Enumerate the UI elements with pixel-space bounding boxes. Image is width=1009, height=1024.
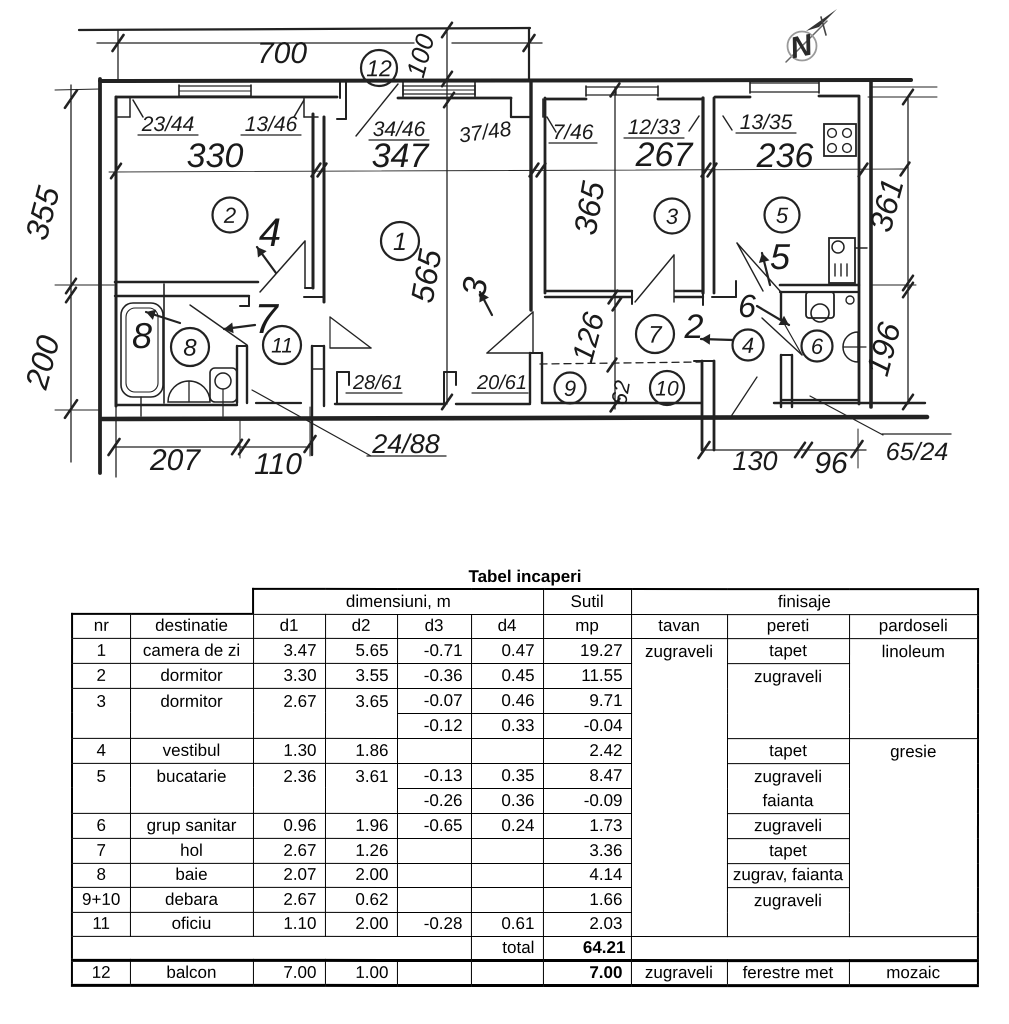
svg-text:3: 3 bbox=[455, 274, 496, 299]
svg-text:110: 110 bbox=[254, 448, 302, 481]
svg-text:565: 565 bbox=[404, 246, 449, 305]
svg-text:200: 200 bbox=[18, 332, 67, 394]
svg-text:4: 4 bbox=[259, 211, 281, 255]
svg-text:4: 4 bbox=[742, 333, 754, 358]
svg-text:1: 1 bbox=[393, 228, 407, 256]
svg-text:62: 62 bbox=[606, 378, 635, 406]
svg-text:96: 96 bbox=[814, 447, 848, 480]
svg-text:267: 267 bbox=[635, 136, 694, 174]
svg-text:196: 196 bbox=[859, 319, 908, 380]
svg-text:12: 12 bbox=[366, 55, 392, 81]
svg-text:10: 10 bbox=[655, 378, 679, 401]
svg-text:126: 126 bbox=[566, 309, 611, 366]
svg-text:8: 8 bbox=[183, 335, 197, 362]
svg-text:207: 207 bbox=[149, 444, 201, 477]
svg-text:130: 130 bbox=[732, 446, 777, 476]
svg-text:20/61: 20/61 bbox=[476, 372, 527, 394]
svg-text:6: 6 bbox=[738, 288, 756, 324]
svg-text:2: 2 bbox=[223, 203, 236, 228]
svg-text:28/61: 28/61 bbox=[352, 372, 403, 394]
svg-text:6: 6 bbox=[811, 334, 824, 359]
svg-text:13/46: 13/46 bbox=[245, 113, 298, 136]
svg-text:65/24: 65/24 bbox=[886, 438, 949, 466]
svg-text:700: 700 bbox=[257, 37, 307, 70]
svg-text:11: 11 bbox=[271, 335, 293, 358]
svg-text:9: 9 bbox=[564, 376, 576, 401]
svg-text:12/33: 12/33 bbox=[628, 116, 681, 139]
svg-text:7: 7 bbox=[648, 322, 663, 349]
svg-text:347: 347 bbox=[372, 137, 430, 175]
svg-text:34/46: 34/46 bbox=[373, 118, 426, 141]
svg-text:7/46: 7/46 bbox=[553, 121, 594, 144]
svg-text:13/35: 13/35 bbox=[740, 111, 793, 134]
svg-text:5: 5 bbox=[776, 203, 789, 228]
svg-text:365: 365 bbox=[567, 178, 612, 237]
svg-text:23/44: 23/44 bbox=[141, 113, 195, 136]
svg-text:236: 236 bbox=[756, 137, 814, 175]
svg-text:8: 8 bbox=[132, 315, 152, 356]
svg-text:3: 3 bbox=[666, 204, 679, 229]
svg-text:330: 330 bbox=[187, 137, 244, 175]
svg-text:355: 355 bbox=[18, 183, 67, 244]
svg-text:37/48: 37/48 bbox=[457, 117, 513, 147]
svg-text:N: N bbox=[787, 28, 816, 65]
svg-text:5: 5 bbox=[770, 236, 791, 277]
svg-text:100: 100 bbox=[400, 30, 440, 80]
svg-text:2: 2 bbox=[684, 308, 704, 346]
svg-text:24/88: 24/88 bbox=[371, 429, 440, 459]
